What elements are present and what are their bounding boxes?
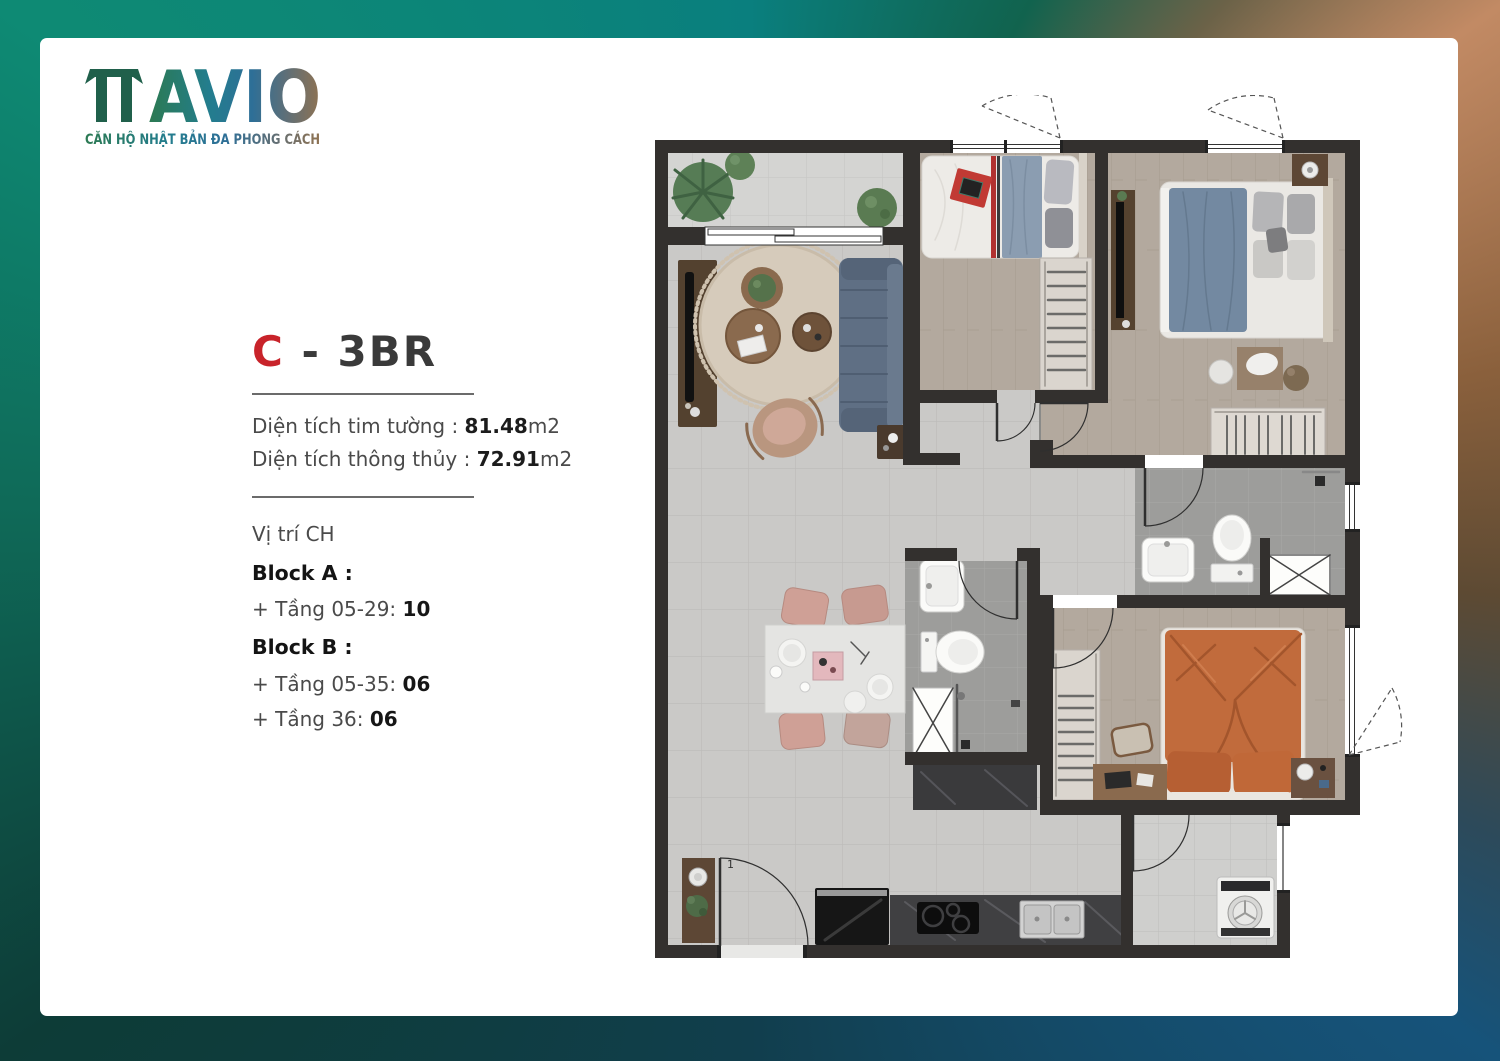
wall-area-value: 81.48 [465,414,528,438]
dining-chair [843,707,891,748]
unit-title: C - 3BR [252,331,592,373]
sofa [839,258,903,432]
clear-area-label: Diện tích thông thủy : [252,447,470,471]
pillow [1166,751,1231,795]
clear-area-line: Diện tích thông thủy : 72.91m2 [252,443,592,476]
window-bathroom2-right [1345,482,1360,532]
headboard [1079,152,1087,260]
brand-tagline: CĂN HỘ NHẬT BẢN ĐA PHONG CÁCH [85,129,320,148]
unit-letter: C [252,327,285,376]
headboard-2 [1323,178,1333,342]
page: { "brand": { "name": "AVIO", "tagline": … [0,0,1500,1061]
tv [685,272,694,402]
coffee-table [726,309,780,363]
brand-name: AVIO [149,60,321,139]
unit-info-panel: C - 3BR Diện tích tim tường : 81.48m2 Di… [252,331,592,740]
floor-plan: 1 [655,95,1415,960]
unit-type: 3BR [338,327,438,376]
wall-area-unit: m2 [528,414,560,438]
wall-area-label: Diện tích tim tường : [252,414,458,438]
entry-opening [717,945,807,958]
block-b-floors-2: + Tầng 36: [252,707,364,731]
pillow [1045,208,1073,248]
divider-top [252,393,474,395]
wardrobe-2 [1211,408,1325,462]
window-bedroom2-top [1205,140,1285,153]
corridor-floor [1040,455,1135,595]
round-rug [700,245,860,405]
nightstand-3 [1291,758,1335,798]
stool [1209,360,1233,384]
wardrobe-3 [1052,650,1100,800]
block-b-line-1: + Tầng 05-35: 06 [252,670,592,699]
wall-area-line: Diện tích tim tường : 81.48m2 [252,410,592,443]
entry-door-mark: 1 [727,858,734,871]
pillow [1232,750,1296,795]
block-b-unit-no-2: 06 [370,707,398,731]
pillow [1043,159,1074,205]
divider-bottom [252,496,474,498]
clear-area-value: 72.91 [477,447,540,471]
dining-chair [778,710,826,750]
block-b-label: Block B : [252,633,592,663]
brand-logo: AVIO CĂN HỘ NHẬT BẢN ĐA PHONG CÁCH [83,60,333,155]
window-bedroom3-right [1345,625,1360,757]
shower-2 [1268,555,1330,595]
location-heading: Vị trí CH [252,520,592,549]
laundry [1217,877,1274,938]
window-bedroom1-top [950,140,1063,153]
pillow [1252,191,1284,233]
block-a-label: Block A : [252,559,592,589]
block-a-unit-no: 10 [403,597,431,621]
sink-1 [920,560,964,612]
stone-block [913,765,1037,810]
toilet-1 [921,631,984,673]
toilet-2 [1211,515,1253,582]
bedroom-3 [1052,628,1335,801]
desk-chair-3 [1111,723,1153,757]
area-lines: Diện tích tim tường : 81.48m2 Diện tích … [252,410,592,476]
sink-2 [1142,538,1194,582]
laundry-service-door [1277,823,1290,893]
location-panel: Vị trí CH Block A : + Tầng 05-29: 10 Blo… [252,520,592,734]
block-b-line-2: + Tầng 36: 06 [252,705,592,734]
side-coffee-table [793,313,831,351]
fridge [815,888,889,945]
fan-window-1 [982,95,1060,138]
dining-chair [841,584,890,626]
block-b-floors-1: + Tầng 05-35: [252,672,396,696]
pillow [1287,194,1315,234]
clear-area-unit: m2 [540,447,572,471]
fan-window-2 [1208,95,1283,138]
pillow [1287,240,1315,280]
unit-dash: - [301,327,320,376]
wardrobe-1 [1040,258,1092,390]
kitchen-sink [1020,901,1084,938]
torii-gate-icon [85,69,143,122]
block-a-floors: + Tầng 05-29: [252,597,396,621]
dining-chair [780,586,830,629]
balcony-sliding-door [705,227,883,245]
block-b-unit-no-1: 06 [403,672,431,696]
block-a-line: + Tầng 05-29: 10 [252,595,592,624]
